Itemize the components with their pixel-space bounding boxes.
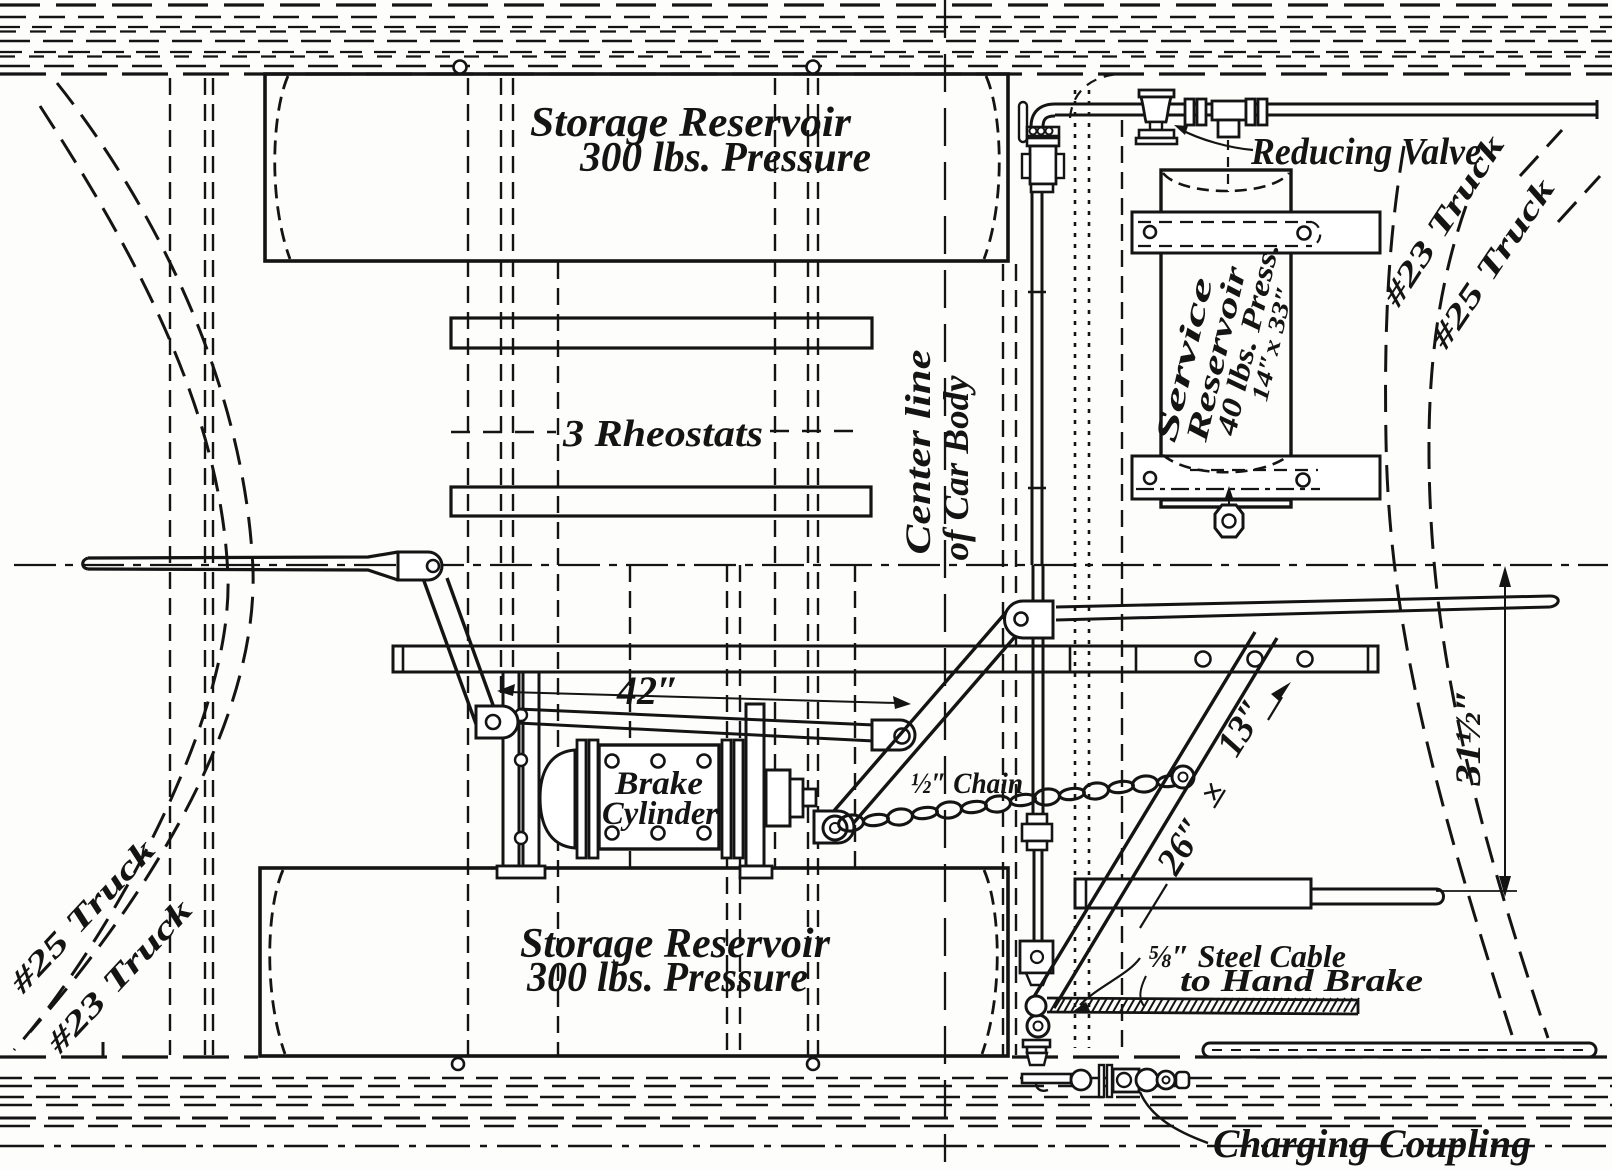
svg-text:3 Rheostats: 3 Rheostats [562, 413, 763, 455]
svg-text:Cylinder: Cylinder [602, 796, 719, 832]
svg-text:Charging Coupling: Charging Coupling [1213, 1121, 1531, 1166]
svg-text:31½″: 31½″ [1448, 689, 1488, 787]
svg-text:300 lbs. Pressure: 300 lbs. Pressure [526, 955, 808, 1001]
svg-text:Center line: Center line [898, 349, 938, 554]
svg-text:to Hand Brake: to Hand Brake [1180, 962, 1423, 998]
svg-text:42″: 42″ [616, 668, 679, 713]
svg-text:of Car Body: of Car Body [936, 374, 976, 560]
svg-text:Reducing Valve: Reducing Valve [1250, 131, 1481, 173]
svg-text:½″ Chain: ½″ Chain [911, 767, 1023, 800]
svg-text:300 lbs. Pressure: 300 lbs. Pressure [579, 135, 871, 181]
